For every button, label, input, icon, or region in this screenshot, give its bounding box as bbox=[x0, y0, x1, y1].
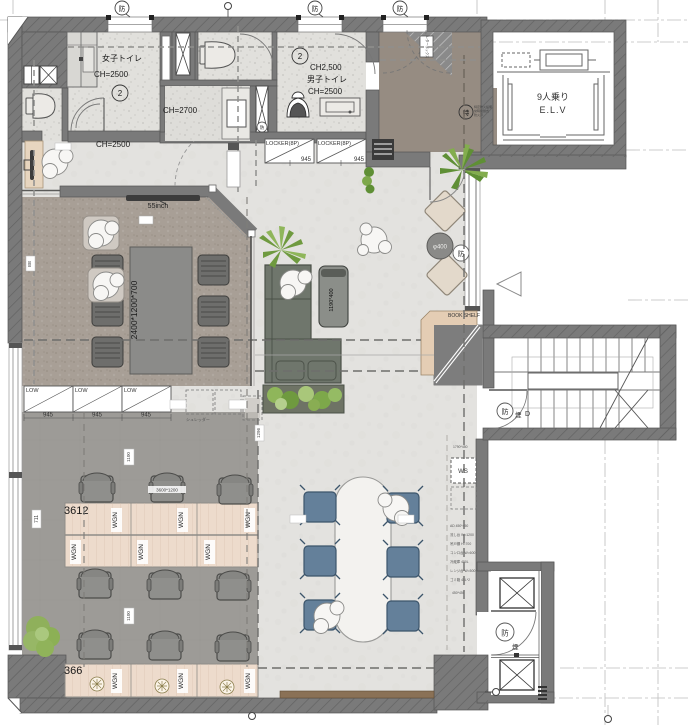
svg-text:D: D bbox=[525, 411, 530, 418]
svg-text:2400*1200*700: 2400*1200*700 bbox=[129, 280, 139, 339]
svg-text:WGN: WGN bbox=[112, 512, 119, 528]
svg-text:945: 945 bbox=[92, 413, 103, 419]
svg-text:WS: WS bbox=[458, 469, 468, 475]
svg-text:男子トイレ: 男子トイレ bbox=[307, 75, 347, 84]
svg-text:WGN: WGN bbox=[71, 544, 78, 560]
svg-text:防: 防 bbox=[397, 4, 404, 13]
svg-text:55inch: 55inch bbox=[148, 203, 169, 210]
svg-text:CH=2700: CH=2700 bbox=[163, 106, 198, 115]
svg-text:BB: BB bbox=[27, 261, 32, 267]
svg-text:ゴミ箱 45L*2: ゴミ箱 45L*2 bbox=[450, 577, 470, 582]
svg-text:LOCKER(8P): LOCKER(8P) bbox=[266, 141, 299, 147]
svg-text:LOW: LOW bbox=[26, 388, 39, 394]
svg-text:防: 防 bbox=[502, 407, 509, 416]
svg-text:450*450: 450*450 bbox=[452, 591, 465, 595]
svg-text:711: 711 bbox=[34, 515, 40, 523]
svg-text:1296: 1296 bbox=[256, 427, 261, 438]
svg-text:防: 防 bbox=[312, 4, 319, 13]
svg-text:流し台 W=1200: 流し台 W=1200 bbox=[450, 532, 474, 537]
svg-text:WGN: WGN bbox=[205, 544, 212, 560]
svg-text:1100: 1100 bbox=[126, 611, 131, 621]
svg-text:防: 防 bbox=[260, 124, 265, 131]
svg-text:冷蔵庫 450L: 冷蔵庫 450L bbox=[450, 559, 469, 564]
svg-text:2: 2 bbox=[118, 89, 123, 98]
svg-text:CH2,500: CH2,500 bbox=[310, 63, 342, 72]
svg-text:WGN: WGN bbox=[245, 673, 252, 689]
svg-text:E.L.V: E.L.V bbox=[539, 105, 566, 115]
svg-text:WGN: WGN bbox=[245, 512, 252, 528]
svg-text:LOW: LOW bbox=[75, 388, 88, 394]
svg-text:防: 防 bbox=[119, 4, 126, 13]
svg-text:女子トイレ: 女子トイレ bbox=[102, 53, 142, 63]
svg-text:煙: 煙 bbox=[512, 642, 519, 651]
svg-text:WGN: WGN bbox=[112, 673, 119, 689]
svg-text:3600*1200: 3600*1200 bbox=[156, 488, 178, 493]
svg-text:吊戸棚 H=700: 吊戸棚 H=700 bbox=[450, 541, 471, 546]
svg-text:945: 945 bbox=[301, 157, 312, 163]
svg-text:WGN: WGN bbox=[178, 512, 185, 528]
svg-text:防火戸: 防火戸 bbox=[474, 112, 483, 117]
svg-text:1790*450: 1790*450 bbox=[453, 445, 468, 449]
svg-text:LOCKER(8P): LOCKER(8P) bbox=[318, 141, 351, 147]
svg-text:WGN: WGN bbox=[138, 544, 145, 560]
svg-text:煙: 煙 bbox=[515, 410, 522, 419]
svg-text:9人乗り: 9人乗り bbox=[537, 91, 569, 102]
svg-text:945: 945 bbox=[43, 413, 54, 419]
svg-text:945: 945 bbox=[354, 157, 365, 163]
svg-text:シュレッダー: シュレッダー bbox=[186, 416, 210, 422]
svg-text:防: 防 bbox=[501, 628, 509, 638]
svg-text:3612: 3612 bbox=[64, 505, 88, 517]
svg-text:CH=2500: CH=2500 bbox=[94, 70, 129, 79]
svg-text:WGN: WGN bbox=[178, 673, 185, 689]
svg-text:2: 2 bbox=[298, 52, 303, 61]
svg-text:1190*400: 1190*400 bbox=[329, 288, 335, 311]
svg-text:945: 945 bbox=[141, 413, 152, 419]
svg-text:レンジ台 W=500: レンジ台 W=500 bbox=[450, 568, 475, 573]
svg-text:1100: 1100 bbox=[126, 452, 131, 462]
svg-text:コンロ台 W=600: コンロ台 W=600 bbox=[450, 550, 475, 555]
svg-text:366: 366 bbox=[64, 665, 82, 677]
svg-text:CH=2500: CH=2500 bbox=[308, 87, 343, 96]
svg-text:LOW: LOW bbox=[124, 388, 137, 394]
svg-text:CH=2500: CH=2500 bbox=[96, 140, 131, 149]
svg-text:AD 450*450: AD 450*450 bbox=[450, 524, 468, 528]
svg-text:φ400: φ400 bbox=[433, 245, 448, 251]
